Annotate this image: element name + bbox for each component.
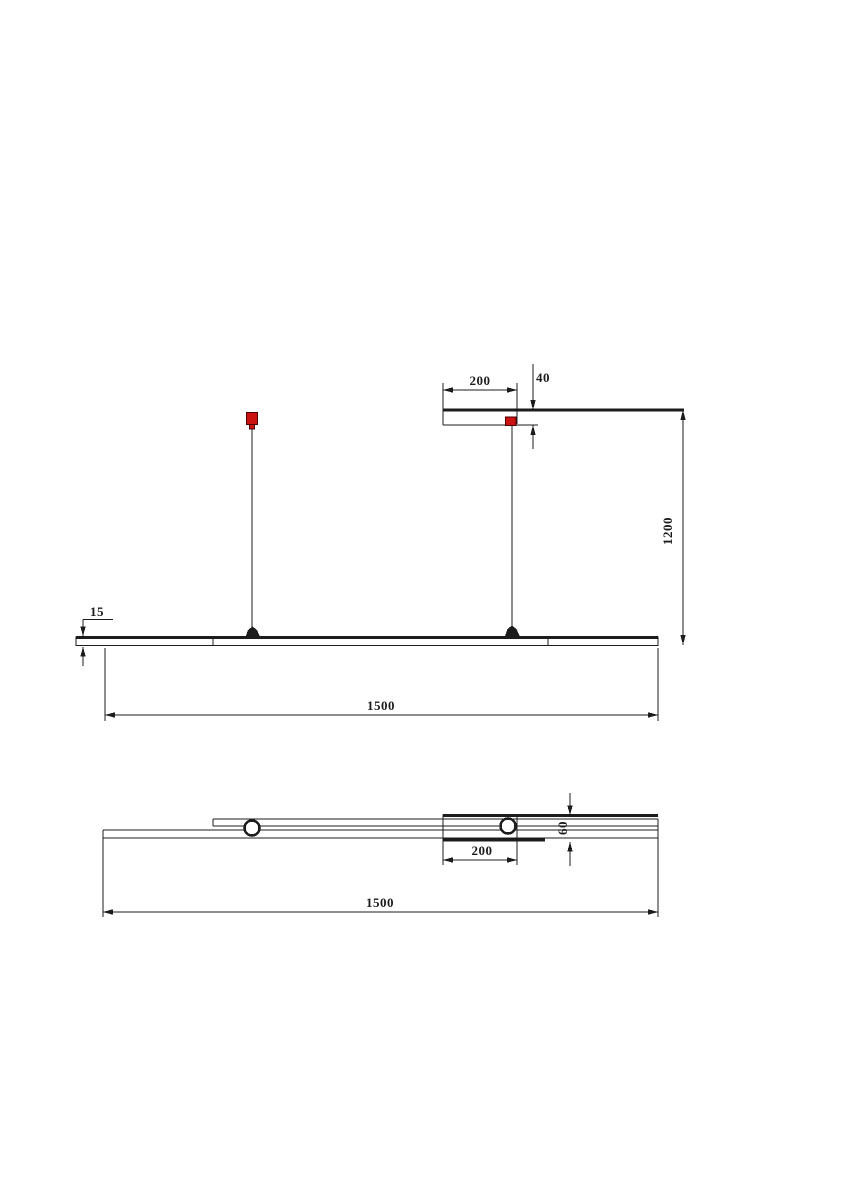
cable-hole-right-icon — [501, 819, 516, 834]
canopy-profile — [443, 383, 538, 425]
lamp-bar-lower-plan — [103, 819, 658, 838]
dim-label-bar-thickness: 15 — [81, 605, 113, 619]
lamp-bar-elevation — [76, 637, 658, 647]
dimension-drop-height — [680, 410, 685, 645]
dim-label-bar-length-elevation: 1500 — [351, 699, 411, 713]
dim-label-canopy-width-elevation: 200 — [460, 374, 500, 388]
lamp-bar-upper-plan — [213, 819, 658, 826]
cable-cone-right-icon — [505, 626, 521, 639]
dim-label-canopy-depth-plan: 60 — [556, 813, 570, 843]
cable-top-cap-red-icon — [247, 413, 258, 430]
cad-linework — [0, 0, 848, 1200]
dimension-bar-thickness — [80, 620, 113, 667]
dim-label-canopy-width-plan: 200 — [460, 844, 504, 858]
dim-label-canopy-height-elevation: 40 — [528, 371, 558, 385]
cable-gripper-red-icon — [506, 417, 517, 426]
drawing-canvas: 200 40 1200 15 1500 200 60 1500 — [0, 0, 848, 1200]
dim-label-bar-length-plan: 1500 — [350, 896, 410, 910]
cable-hole-left-icon — [245, 821, 260, 836]
dim-label-drop-height: 1200 — [661, 509, 675, 553]
